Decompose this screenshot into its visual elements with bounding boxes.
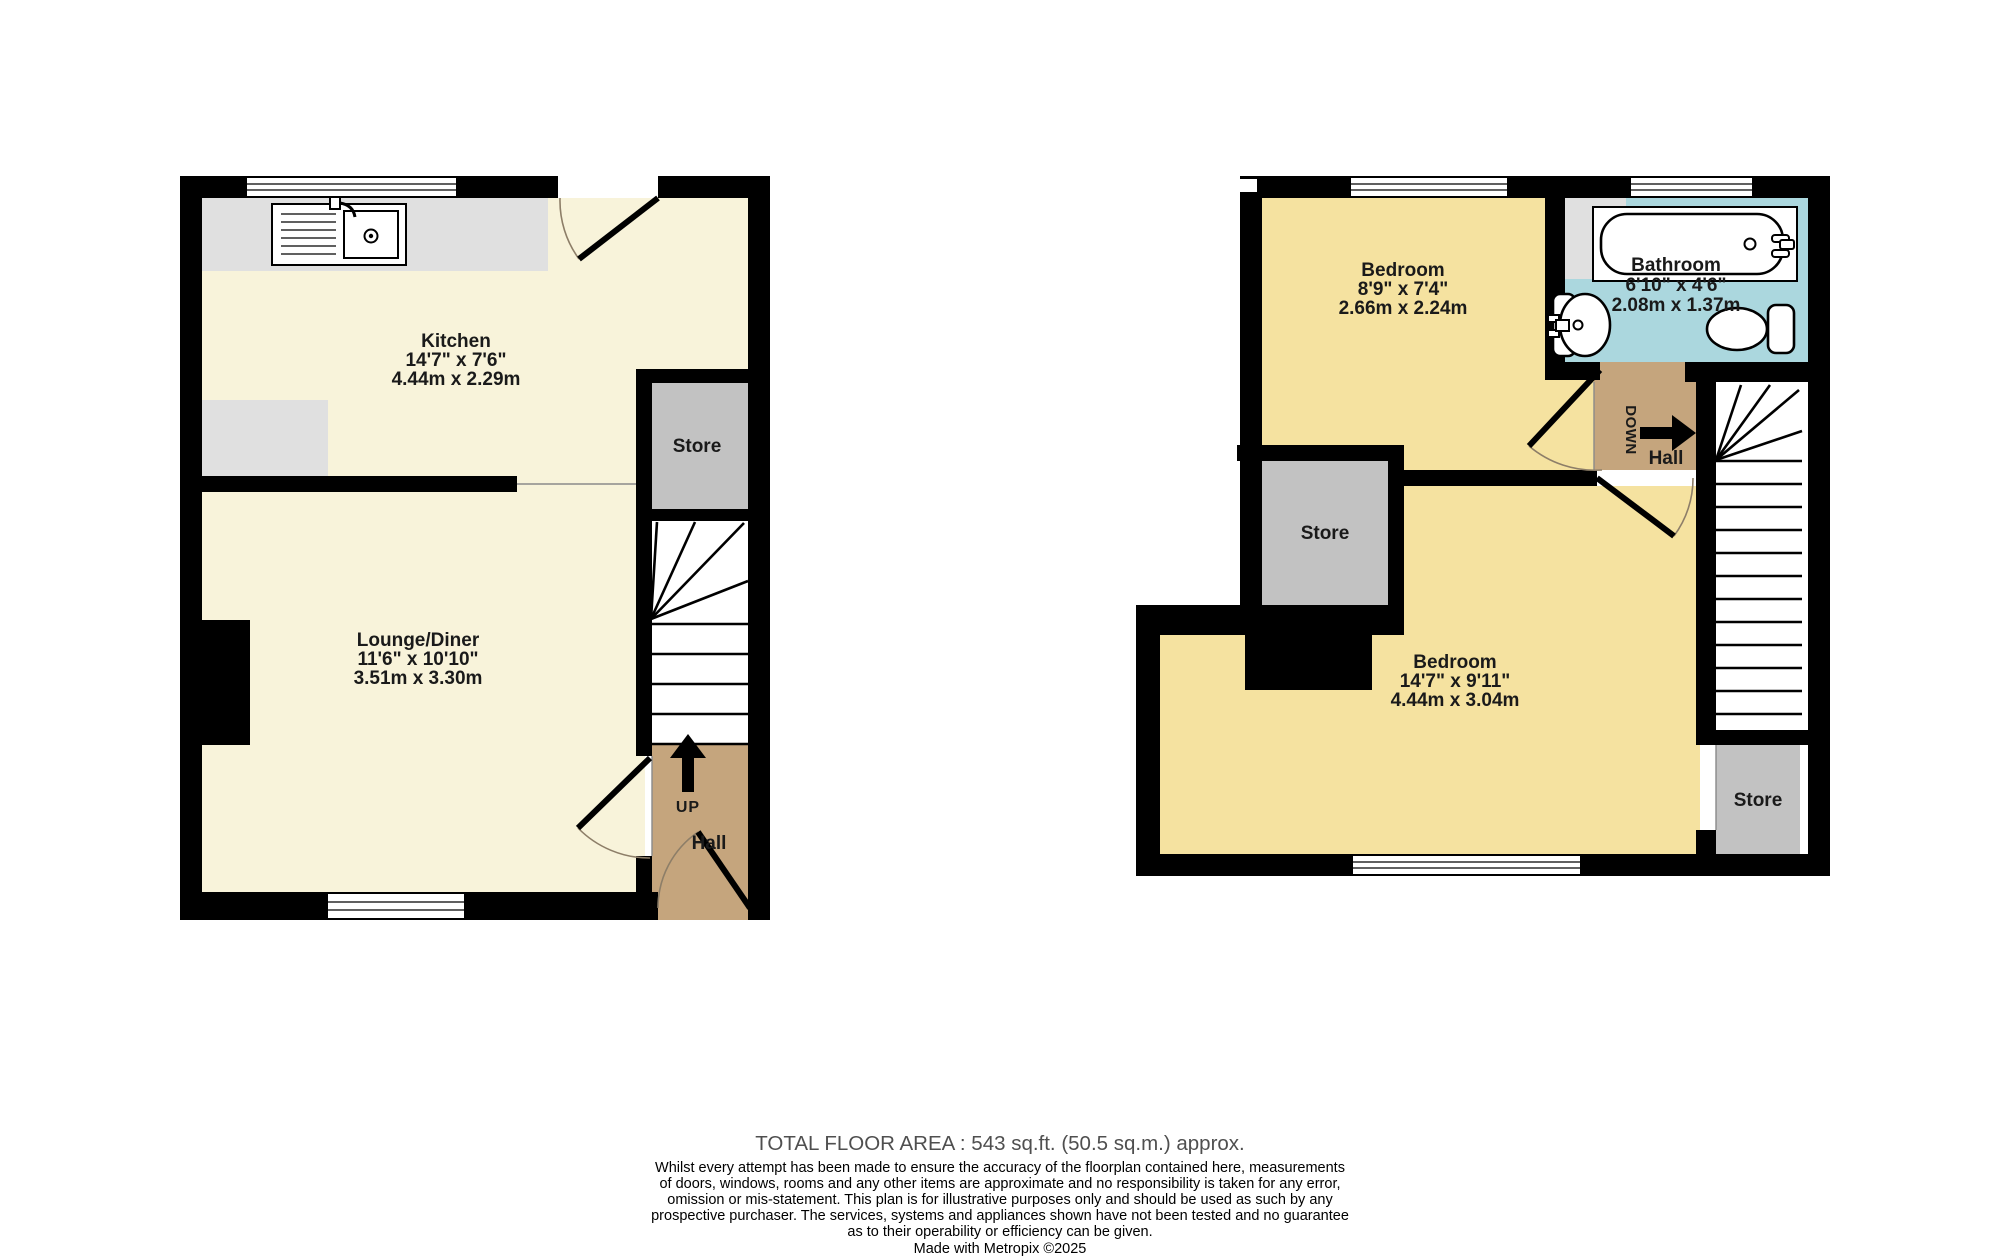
- wall-top: [1508, 176, 1630, 198]
- window: [1630, 177, 1753, 197]
- kitchen-dims-imperial: 14'7" x 7'6": [405, 350, 506, 371]
- stairs-up-floor: [652, 521, 748, 744]
- wall-store-stub: [1696, 830, 1716, 854]
- floorplan-canvas: Kitchen 14'7" x 7'6" 4.44m x 2.29m Store…: [0, 0, 2000, 1257]
- bedroom-small-dims-imperial: 8'9" x 7'4": [1358, 279, 1448, 300]
- bathroom-dims-metric: 2.08m x 1.37m: [1612, 295, 1741, 316]
- ground-floor-plan: Kitchen 14'7" x 7'6" 4.44m x 2.29m Store…: [180, 176, 770, 920]
- wall-store-top: [1237, 445, 1404, 461]
- total-floor-area: TOTAL FLOOR AREA : 543 sq.ft. (50.5 sq.m…: [755, 1132, 1245, 1155]
- floorplan-page: Kitchen 14'7" x 7'6" 4.44m x 2.29m Store…: [0, 0, 2000, 1257]
- wall-divider: [1136, 605, 1404, 635]
- first-floor-plan: Bedroom 8'9" x 7'4" 2.66m x 2.24m Bathro…: [1136, 176, 1830, 876]
- wall-right: [748, 176, 770, 920]
- hall-label: Hall: [692, 833, 727, 854]
- disclaimer-line: prospective purchaser. The services, sys…: [651, 1208, 1349, 1224]
- hall-label: Hall: [1649, 448, 1684, 469]
- chimney-breast: [202, 620, 250, 745]
- wall-hall-left: [636, 521, 652, 756]
- wall-bottom: [1136, 854, 1352, 876]
- kitchen-label: Kitchen: [421, 331, 491, 352]
- lounge-label: Lounge/Diner: [357, 630, 480, 651]
- store-lower-label: Store: [1734, 790, 1783, 811]
- wall: [457, 176, 558, 198]
- wall-stairs-left: [1696, 362, 1716, 745]
- wall-upper-left: [1240, 176, 1262, 635]
- kitchen-dims-metric: 4.44m x 2.29m: [392, 369, 521, 390]
- bedroom-small-label: Bedroom: [1361, 260, 1444, 281]
- bedroom-small-dims-metric: 2.66m x 2.24m: [1339, 298, 1468, 319]
- sink: [1548, 294, 1610, 356]
- disclaimer-line: of doors, windows, rooms and any other i…: [659, 1176, 1340, 1192]
- down-label: DOWN: [1622, 405, 1639, 455]
- wall-store-bottom: [636, 509, 748, 521]
- bathroom-dims-imperial: 6'10" x 4'6": [1625, 275, 1726, 296]
- store-upper-label: Store: [1301, 523, 1350, 544]
- wall-right: [1808, 176, 1830, 876]
- footer: TOTAL FLOOR AREA : 543 sq.ft. (50.5 sq.m…: [651, 1132, 1349, 1257]
- window: [246, 177, 457, 197]
- bedroom-large-dims-imperial: 14'7" x 9'11": [1400, 671, 1511, 692]
- wall-bottom: [180, 892, 327, 920]
- wall-stub: [636, 856, 652, 908]
- wall-lower-left: [1136, 605, 1160, 876]
- wall-bottom: [465, 892, 658, 920]
- wall-notch: [1240, 179, 1257, 192]
- bedroom-large-label: Bedroom: [1413, 652, 1496, 673]
- store-label: Store: [673, 436, 722, 457]
- wall-store-top: [636, 369, 748, 383]
- bedroom-large-dims-metric: 4.44m x 3.04m: [1391, 690, 1520, 711]
- window: [1352, 855, 1581, 875]
- front-doorway: [658, 892, 748, 920]
- disclaimer-line: as to their operability or efficiency ca…: [847, 1224, 1152, 1240]
- bathroom-label: Bathroom: [1631, 255, 1721, 276]
- kitchen-appliance: [202, 400, 328, 476]
- wall-stairs-bottom: [1716, 730, 1826, 745]
- wall-store-left: [636, 369, 652, 521]
- lounge-dims-metric: 3.51m x 3.30m: [354, 668, 483, 689]
- kitchen-sink: [272, 197, 406, 265]
- wall-store-right: [1388, 445, 1404, 635]
- wall-bottom: [1581, 854, 1826, 876]
- up-label: UP: [676, 799, 700, 816]
- window: [1350, 177, 1508, 197]
- wall-hall-bottom: [1404, 470, 1597, 486]
- chimney-breast: [1245, 635, 1372, 690]
- wall-left: [180, 176, 202, 920]
- lounge-dims-imperial: 11'6" x 10'10": [357, 649, 478, 670]
- disclaimer-line: omission or mis-statement. This plan is …: [667, 1192, 1333, 1208]
- credit-line: Made with Metropix ©2025: [914, 1241, 1087, 1257]
- disclaimer-line: Whilst every attempt has been made to en…: [655, 1160, 1345, 1176]
- wall-divider: [202, 476, 517, 492]
- window: [327, 893, 465, 919]
